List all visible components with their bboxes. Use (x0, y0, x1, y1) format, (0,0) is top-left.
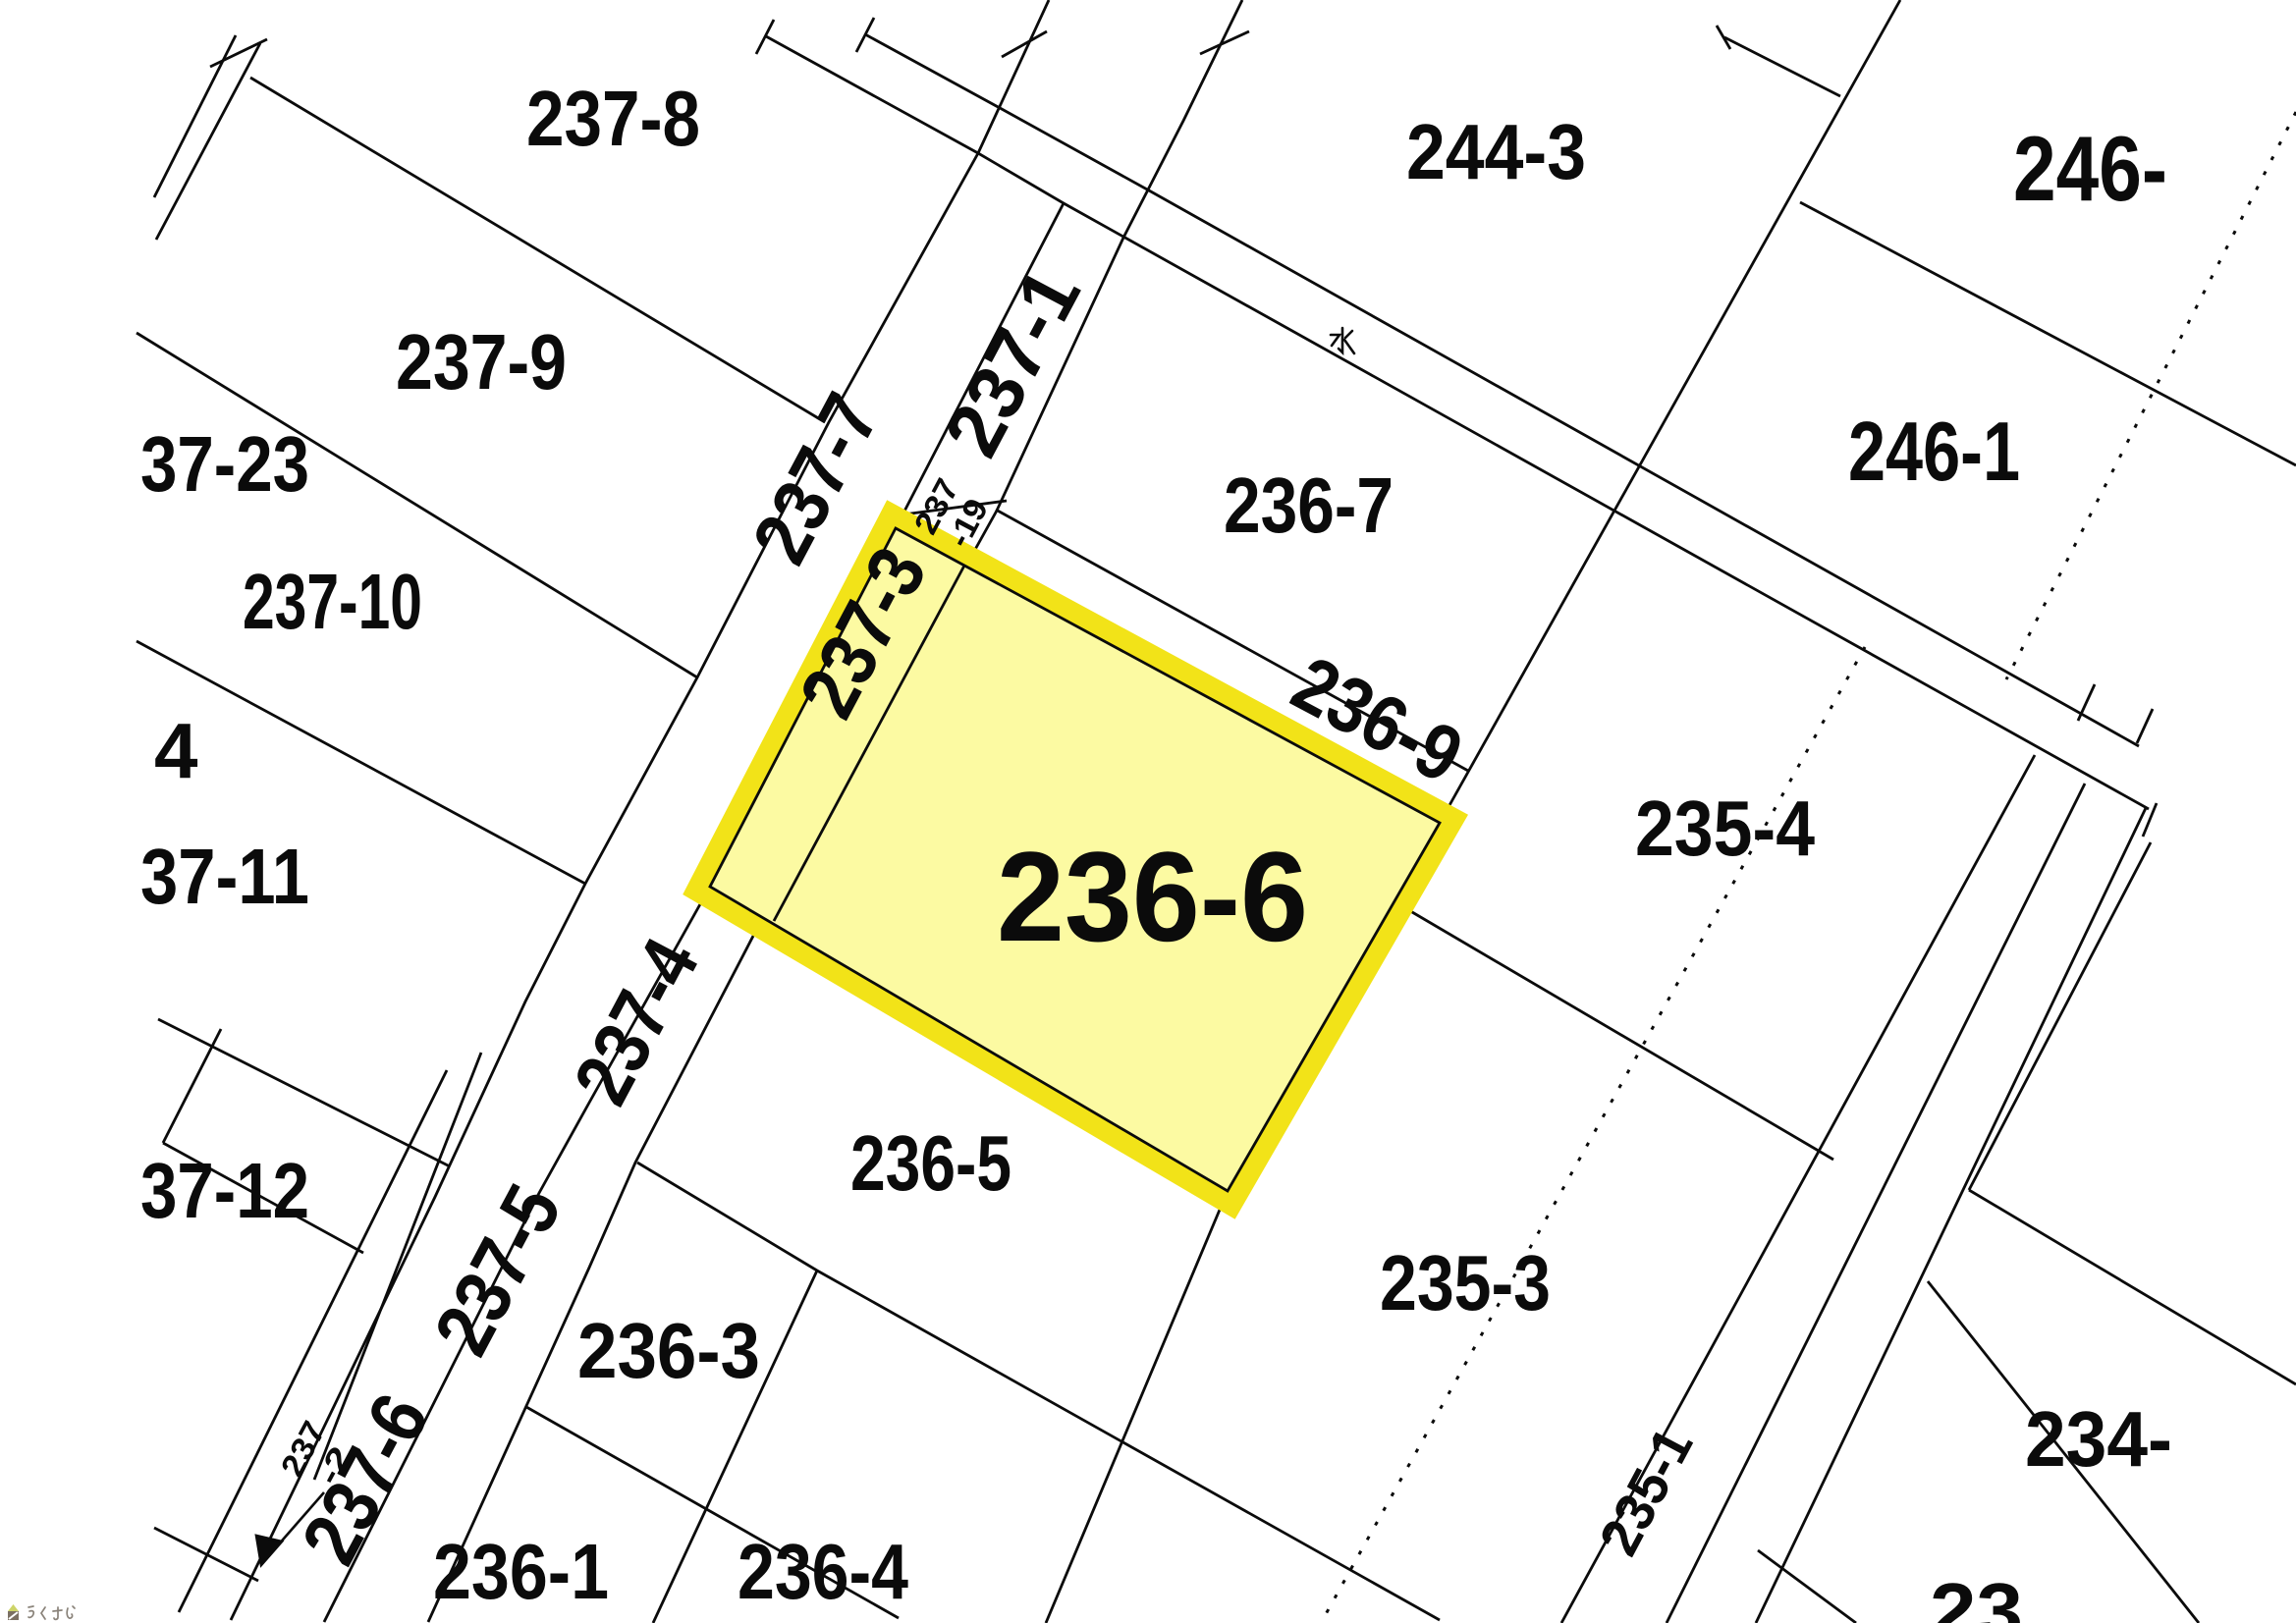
svg-text:244-3: 244-3 (1406, 108, 1586, 195)
svg-text:246-: 246- (2013, 117, 2167, 220)
svg-text:37-11: 37-11 (140, 833, 309, 920)
svg-text:246-1: 246-1 (1848, 406, 2020, 499)
svg-text:236-6: 236-6 (997, 825, 1308, 968)
svg-text:237-10: 237-10 (243, 558, 422, 645)
svg-text:23: 23 (1930, 1567, 2023, 1623)
svg-text:37-12: 37-12 (140, 1147, 309, 1234)
svg-text:237-8: 237-8 (526, 75, 700, 162)
svg-text:37-23: 37-23 (140, 420, 309, 508)
svg-text:236-1: 236-1 (433, 1528, 609, 1615)
svg-text:235-3: 235-3 (1380, 1239, 1551, 1326)
svg-text:236-3: 236-3 (577, 1307, 760, 1394)
svg-text:234-: 234- (2025, 1395, 2172, 1483)
svg-text:236-7: 236-7 (1224, 461, 1394, 549)
svg-text:237-9: 237-9 (396, 318, 567, 406)
svg-text:235-4: 235-4 (1635, 784, 1815, 872)
svg-text:236-5: 236-5 (850, 1119, 1011, 1207)
svg-text:236-4: 236-4 (738, 1528, 908, 1615)
svg-text:4: 4 (154, 707, 198, 794)
